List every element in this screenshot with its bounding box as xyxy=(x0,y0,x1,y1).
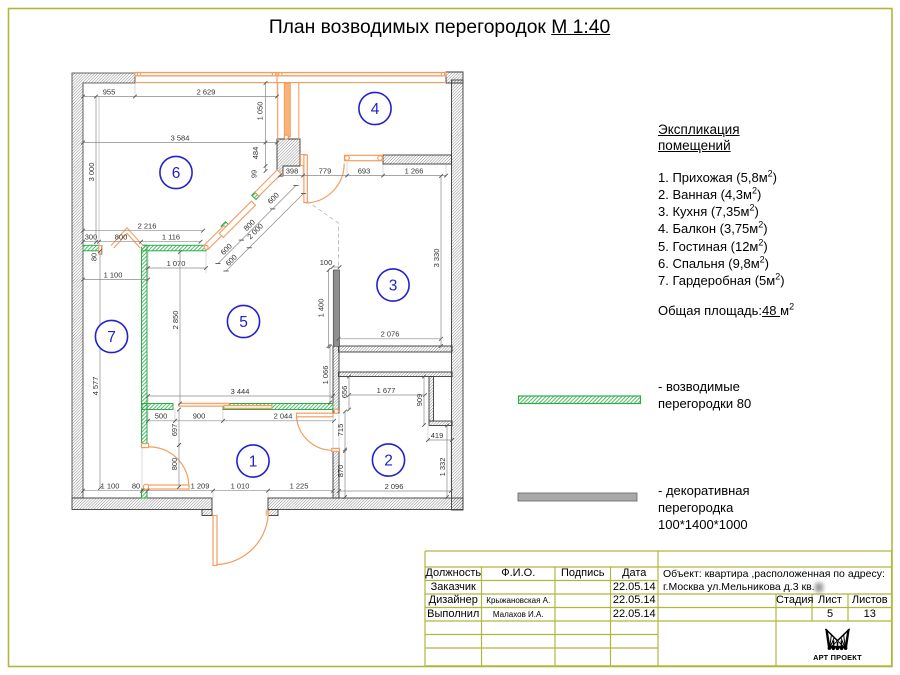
svg-text:1 050: 1 050 xyxy=(256,102,265,121)
svg-text:6: 6 xyxy=(172,165,181,182)
svg-text:909: 909 xyxy=(415,394,424,407)
svg-text:2 044: 2 044 xyxy=(274,412,293,421)
svg-text:1 400: 1 400 xyxy=(317,299,326,318)
svg-text:697: 697 xyxy=(170,424,179,437)
svg-text:693: 693 xyxy=(358,166,371,175)
svg-text:779: 779 xyxy=(319,166,332,175)
svg-text:АРТ ПРОЕКТ: АРТ ПРОЕКТ xyxy=(813,653,862,662)
svg-text:1 225: 1 225 xyxy=(290,482,309,491)
svg-text:1 116: 1 116 xyxy=(162,233,180,242)
svg-text:955: 955 xyxy=(103,87,116,96)
svg-text:600: 600 xyxy=(266,191,281,206)
svg-text:5: 5 xyxy=(239,314,248,331)
svg-text:1 209: 1 209 xyxy=(191,482,210,491)
svg-text:715: 715 xyxy=(336,424,345,437)
svg-text:1 070: 1 070 xyxy=(167,259,186,268)
svg-text:1: 1 xyxy=(249,453,258,470)
svg-text:500: 500 xyxy=(155,412,168,421)
svg-text:2 076: 2 076 xyxy=(381,330,400,339)
svg-text:7: 7 xyxy=(107,329,116,346)
svg-text:2: 2 xyxy=(384,452,393,469)
svg-text:1 677: 1 677 xyxy=(377,386,396,395)
svg-text:419: 419 xyxy=(431,431,444,440)
svg-text:300: 300 xyxy=(85,233,98,242)
svg-text:2 096: 2 096 xyxy=(385,482,404,491)
svg-text:80: 80 xyxy=(90,253,99,261)
svg-text:900: 900 xyxy=(193,412,206,421)
svg-text:2 629: 2 629 xyxy=(197,87,216,96)
svg-text:484: 484 xyxy=(251,147,260,160)
svg-text:656: 656 xyxy=(340,386,349,399)
svg-text:800: 800 xyxy=(170,458,179,471)
svg-text:100: 100 xyxy=(320,258,333,267)
svg-text:1 100: 1 100 xyxy=(101,482,120,491)
svg-text:3: 3 xyxy=(389,277,398,294)
svg-text:870: 870 xyxy=(336,465,345,478)
svg-text:80: 80 xyxy=(132,482,140,491)
svg-text:1 010: 1 010 xyxy=(231,482,250,491)
svg-text:2 850: 2 850 xyxy=(171,311,180,330)
svg-text:99: 99 xyxy=(250,170,259,178)
svg-text:1 066: 1 066 xyxy=(321,366,330,385)
svg-text:2 216: 2 216 xyxy=(138,222,157,231)
svg-text:1 266: 1 266 xyxy=(405,166,424,175)
svg-text:4: 4 xyxy=(371,101,380,118)
svg-text:1 332: 1 332 xyxy=(438,458,447,477)
svg-text:1 100: 1 100 xyxy=(104,270,123,279)
svg-text:3 330: 3 330 xyxy=(432,249,441,268)
svg-text:3 000: 3 000 xyxy=(87,163,96,182)
svg-text:398: 398 xyxy=(286,166,299,175)
svg-text:3 444: 3 444 xyxy=(231,387,250,396)
svg-text:3 584: 3 584 xyxy=(171,133,190,142)
svg-text:800: 800 xyxy=(115,233,128,242)
svg-text:4 577: 4 577 xyxy=(91,377,100,396)
